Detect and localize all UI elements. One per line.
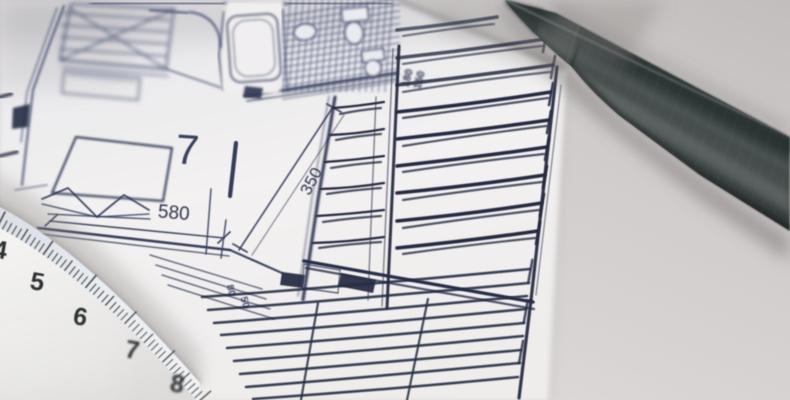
svg-text:580: 580 — [157, 202, 190, 226]
svg-text:7: 7 — [174, 125, 201, 174]
